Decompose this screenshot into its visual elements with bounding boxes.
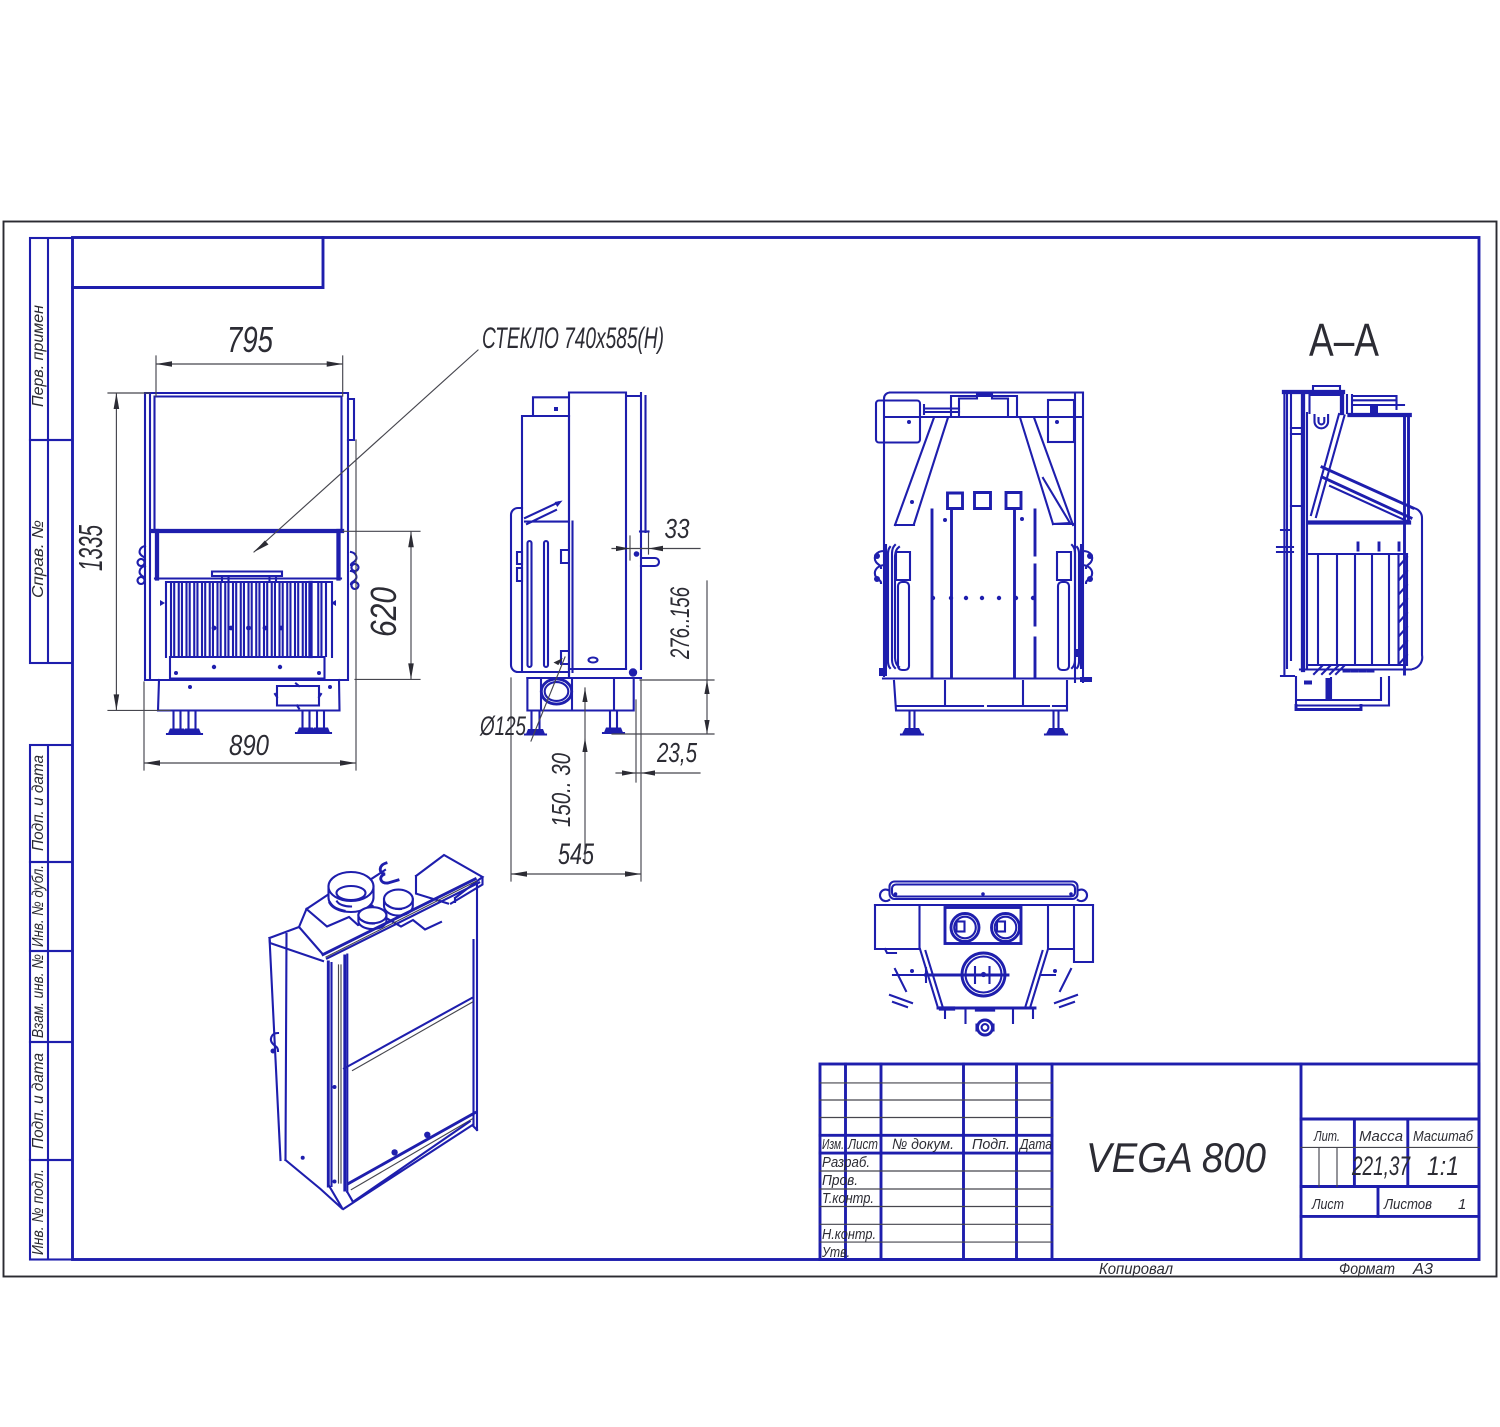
svg-text:Масштаб: Масштаб [1413,1128,1473,1145]
svg-text:А3: А3 [1412,1261,1433,1278]
svg-text:Инв. № подл.: Инв. № подл. [30,1169,47,1255]
svg-text:Утв.: Утв. [821,1244,850,1261]
svg-text:Формат: Формат [1339,1261,1395,1278]
svg-text:1335: 1335 [72,525,109,571]
svg-text:Лист: Лист [847,1136,878,1153]
svg-text:Лист: Лист [1311,1196,1344,1213]
svg-text:276..156: 276..156 [665,586,695,659]
svg-text:Пров.: Пров. [822,1172,858,1189]
svg-text:Копировал: Копировал [1099,1261,1173,1278]
svg-text:Ø125: Ø125 [479,711,526,741]
svg-text:Дата: Дата [1018,1136,1052,1153]
svg-text:Т.контр.: Т.контр. [822,1190,874,1207]
svg-text:1:1: 1:1 [1427,1151,1459,1181]
svg-text:Н.контр.: Н.контр. [822,1226,876,1243]
svg-text:33: 33 [665,513,690,544]
svg-text:№ докум.: № докум. [892,1136,954,1153]
svg-text:620: 620 [363,587,404,637]
svg-text:СТЕКЛО 740х585(Н): СТЕКЛО 740х585(Н) [482,322,664,355]
svg-text:Справ. №: Справ. № [30,520,47,598]
svg-text:Подп. и дата: Подп. и дата [30,755,47,851]
svg-text:VEGA 800: VEGA 800 [1086,1134,1267,1181]
svg-text:Взам. инв. №: Взам. инв. № [30,954,47,1038]
svg-text:221,37: 221,37 [1351,1151,1410,1181]
svg-text:Инв. № дубл.: Инв. № дубл. [30,865,47,947]
svg-text:545: 545 [558,838,594,871]
svg-text:23,5: 23,5 [656,737,697,768]
svg-text:Разраб.: Разраб. [822,1154,870,1171]
svg-text:1: 1 [1458,1196,1466,1213]
svg-text:Подп. и дата: Подп. и дата [30,1053,47,1149]
svg-text:Листов: Листов [1383,1196,1432,1213]
svg-text:Перв. примен: Перв. примен [30,305,47,407]
svg-text:Изм.: Изм. [822,1136,844,1153]
svg-text:150.. 30: 150.. 30 [546,753,576,827]
svg-text:890: 890 [229,730,269,762]
svg-text:Масса: Масса [1359,1128,1403,1145]
svg-text:795: 795 [227,319,274,360]
svg-text:A–A: A–A [1309,314,1379,366]
svg-text:Лит.: Лит. [1313,1128,1340,1145]
svg-text:Подп.: Подп. [972,1136,1010,1153]
